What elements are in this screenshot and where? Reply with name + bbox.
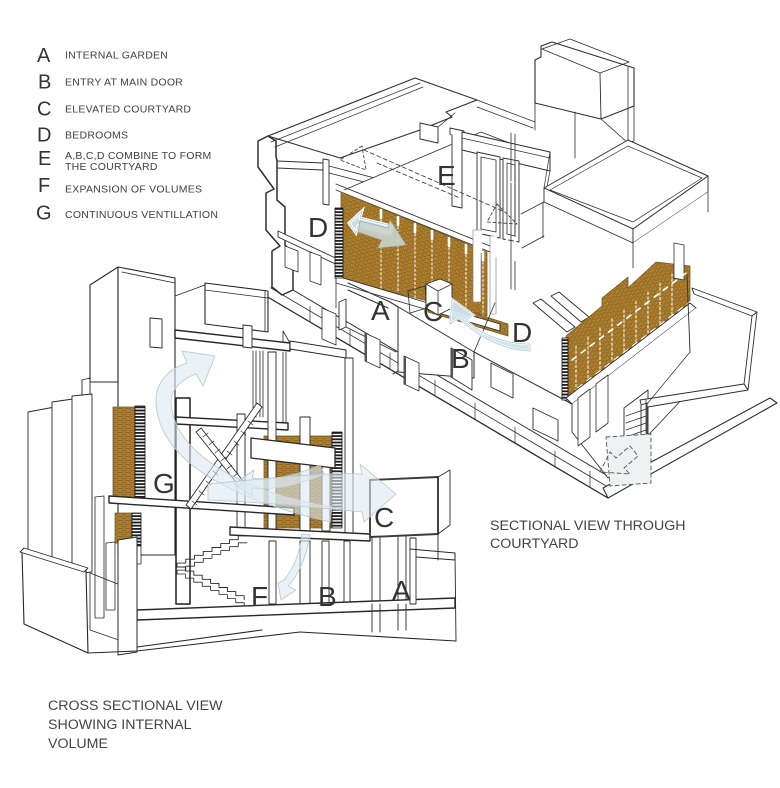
svg-text:C: C (374, 502, 394, 533)
svg-text:INTERNAL GARDEN: INTERNAL GARDEN (65, 50, 168, 62)
svg-text:BEDROOMS: BEDROOMS (65, 130, 128, 142)
svg-text:F: F (251, 581, 268, 612)
svg-text:CROSS SECTIONAL VIEW: CROSS SECTIONAL VIEW (48, 698, 223, 714)
svg-text:SHOWING INTERNAL: SHOWING INTERNAL (48, 717, 192, 733)
svg-text:B: B (451, 343, 470, 374)
svg-text:COURTYARD: COURTYARD (490, 536, 579, 552)
svg-text:C: C (423, 296, 443, 327)
svg-text:G: G (36, 203, 52, 225)
svg-text:D: D (512, 317, 532, 348)
svg-text:ELEVATED COURTYARD: ELEVATED COURTYARD (65, 104, 191, 116)
svg-text:A: A (371, 295, 390, 326)
svg-text:THE COURTYARD: THE COURTYARD (65, 161, 158, 173)
svg-text:D: D (308, 212, 328, 243)
svg-text:C: C (37, 99, 51, 121)
svg-text:E: E (437, 160, 456, 191)
svg-text:D: D (37, 125, 51, 147)
svg-text:B: B (318, 581, 337, 612)
svg-text:A: A (392, 575, 411, 606)
svg-text:B: B (38, 72, 51, 94)
svg-text:CONTINUOUS VENTILLATION: CONTINUOUS VENTILLATION (65, 209, 218, 221)
svg-text:VOLUME: VOLUME (48, 736, 108, 752)
svg-text:SECTIONAL VIEW THROUGH: SECTIONAL VIEW THROUGH (490, 518, 686, 534)
svg-text:E: E (38, 148, 51, 170)
svg-text:F: F (38, 175, 50, 197)
svg-text:G: G (153, 468, 175, 499)
svg-text:ENTRY AT MAIN DOOR: ENTRY AT MAIN DOOR (65, 77, 183, 89)
svg-text:A: A (37, 45, 51, 67)
svg-text:EXPANSION OF VOLUMES: EXPANSION OF VOLUMES (65, 184, 202, 196)
